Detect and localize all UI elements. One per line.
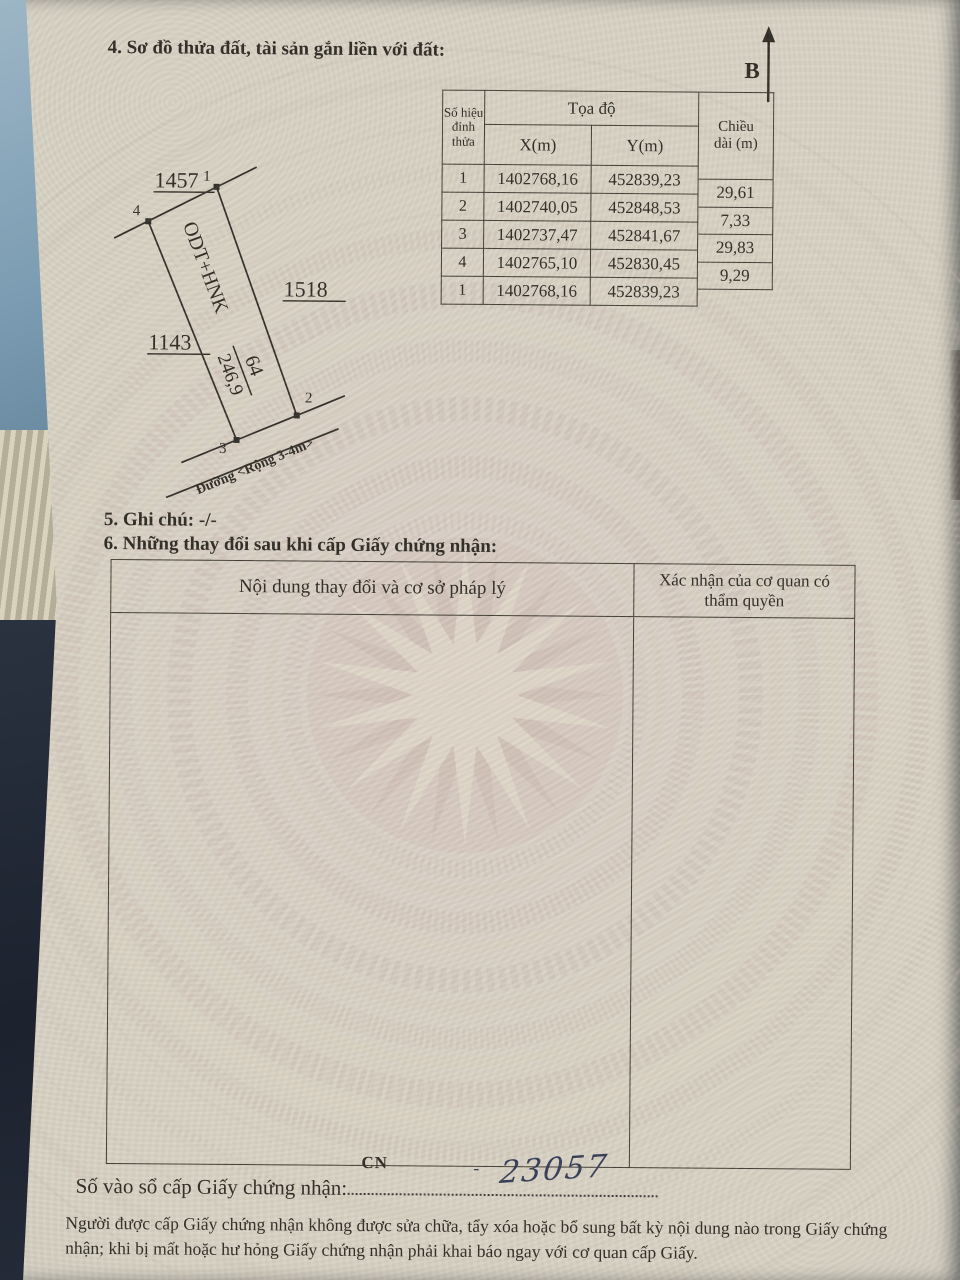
registry-cn-prefix: CN <box>361 1153 388 1173</box>
changes-table: Nội dung thay đổi và cơ sở pháp lý Xác n… <box>106 559 856 1170</box>
registry-dash: - <box>473 1158 479 1179</box>
coordinate-y: 452848,53 <box>591 193 698 222</box>
vertex-label-3: 3 <box>219 441 227 457</box>
coordinate-x: 1402768,16 <box>483 276 590 305</box>
edge-length: 7,33 <box>698 207 773 235</box>
coordinate-y: 452839,23 <box>590 277 697 306</box>
certificate-page: 4. Sơ đồ thửa đất, tài sản gắn liền với … <box>0 0 960 1280</box>
vertex-mark-3 <box>234 437 240 443</box>
coordinate-x: 1402768,16 <box>484 164 591 193</box>
registry-label: Số vào sổ cấp Giấy chứng nhận: <box>76 1174 348 1200</box>
vertex-label-2: 2 <box>305 391 313 407</box>
coordinate-table-header-x: X(m) <box>484 124 591 165</box>
coordinate-x: 1402765,10 <box>483 248 590 277</box>
edge-length: 29,61 <box>698 180 773 208</box>
section6-title: 6. Những thay đổi sau khi cấp Giấy chứng… <box>104 533 498 558</box>
coordinate-table-header-coords: Tọa độ <box>485 90 699 126</box>
changes-col-content-header: Nội dung thay đổi và cơ sở pháp lý <box>111 560 634 616</box>
vertex-mark-2 <box>294 412 300 418</box>
photo-of-document: 4. Sơ đồ thửa đất, tài sản gắn liền với … <box>0 0 960 1280</box>
road-label: Đường <Rộng 3-4m> <box>194 436 316 498</box>
coordinate-y: 452839,23 <box>591 165 698 194</box>
section5-note: 5. Ghi chú: -/- <box>104 509 217 532</box>
table-row: 1 1402768,16 452839,23 <box>442 164 698 194</box>
changes-col-confirmation-header: Xác nhận của cơ quan có thẩm quyền <box>634 564 854 618</box>
table-row: 1 1402768,16 452839,23 <box>441 276 697 306</box>
coordinate-x: 1402740,05 <box>484 192 591 221</box>
changes-table-header: Nội dung thay đổi và cơ sở pháp lý Xác n… <box>111 560 854 619</box>
vertex-mark-4 <box>145 218 151 224</box>
changes-confirmation-cell <box>630 617 854 1169</box>
changes-table-body <box>107 613 854 1169</box>
footer-warning: Người được cấp Giấy chứng nhận không đượ… <box>65 1211 887 1268</box>
parcel-diagram: 1 2 3 4 1457 1518 1143 ODT+HNK 64 <box>96 149 409 511</box>
road-edge-1 <box>181 395 345 464</box>
section4-title: 4. Sơ đồ thửa đất, tài sản gắn liền với … <box>108 37 748 64</box>
adjacent-parcel-right: 1518 <box>284 276 328 301</box>
vertex-number: 1 <box>442 164 484 192</box>
adjacent-parcel-top: 1457 <box>154 167 198 192</box>
vertex-number: 4 <box>441 248 483 276</box>
coordinate-x: 1402737,47 <box>484 220 591 249</box>
north-label: B <box>744 58 760 83</box>
vertex-label-4: 4 <box>133 203 141 219</box>
edge-length: 29,83 <box>698 235 773 263</box>
vertex-number: 2 <box>442 192 484 220</box>
coordinate-table-header-y: Y(m) <box>591 125 698 166</box>
registry-number-handwritten: 23057 <box>497 1148 610 1191</box>
changes-content-cell <box>107 613 634 1167</box>
registry-dotted-line: CN-23057 <box>347 1169 657 1197</box>
parcel-area-label: 246,9 <box>213 351 248 398</box>
paper-edge-gap <box>948 350 960 500</box>
north-arrowhead <box>762 26 775 42</box>
table-row: 2 1402740,05 452848,53 <box>442 192 698 222</box>
vertex-mark-1 <box>214 184 220 190</box>
registry-line: Số vào sổ cấp Giấy chứng nhận:CN-23057 <box>76 1167 658 1204</box>
coordinate-table-header-length: Chiều dài (m) <box>699 92 775 181</box>
length-column: Chiều dài (m) 29,61 7,33 29,83 9,29 <box>698 92 775 291</box>
vertex-label-1: 1 <box>203 169 211 185</box>
coordinate-table: Số hiệu đỉnh thửa Tọa độ X(m) Y(m) 1 140… <box>441 90 775 308</box>
table-row: 3 1402737,47 452841,67 <box>442 220 698 250</box>
table-row: 4 1402765,10 452830,45 <box>441 248 697 278</box>
adjacent-parcel-left: 1143 <box>148 329 191 354</box>
vertex-number: 1 <box>441 276 483 304</box>
edge-length: 9,29 <box>698 262 773 290</box>
vertex-number: 3 <box>442 220 484 248</box>
coordinate-table-header-vertex: Số hiệu đỉnh thửa <box>442 90 485 164</box>
coordinate-y: 452841,67 <box>591 221 698 250</box>
land-use-code-label: ODT+HNK <box>178 219 232 317</box>
coordinate-y: 452830,45 <box>590 249 697 278</box>
